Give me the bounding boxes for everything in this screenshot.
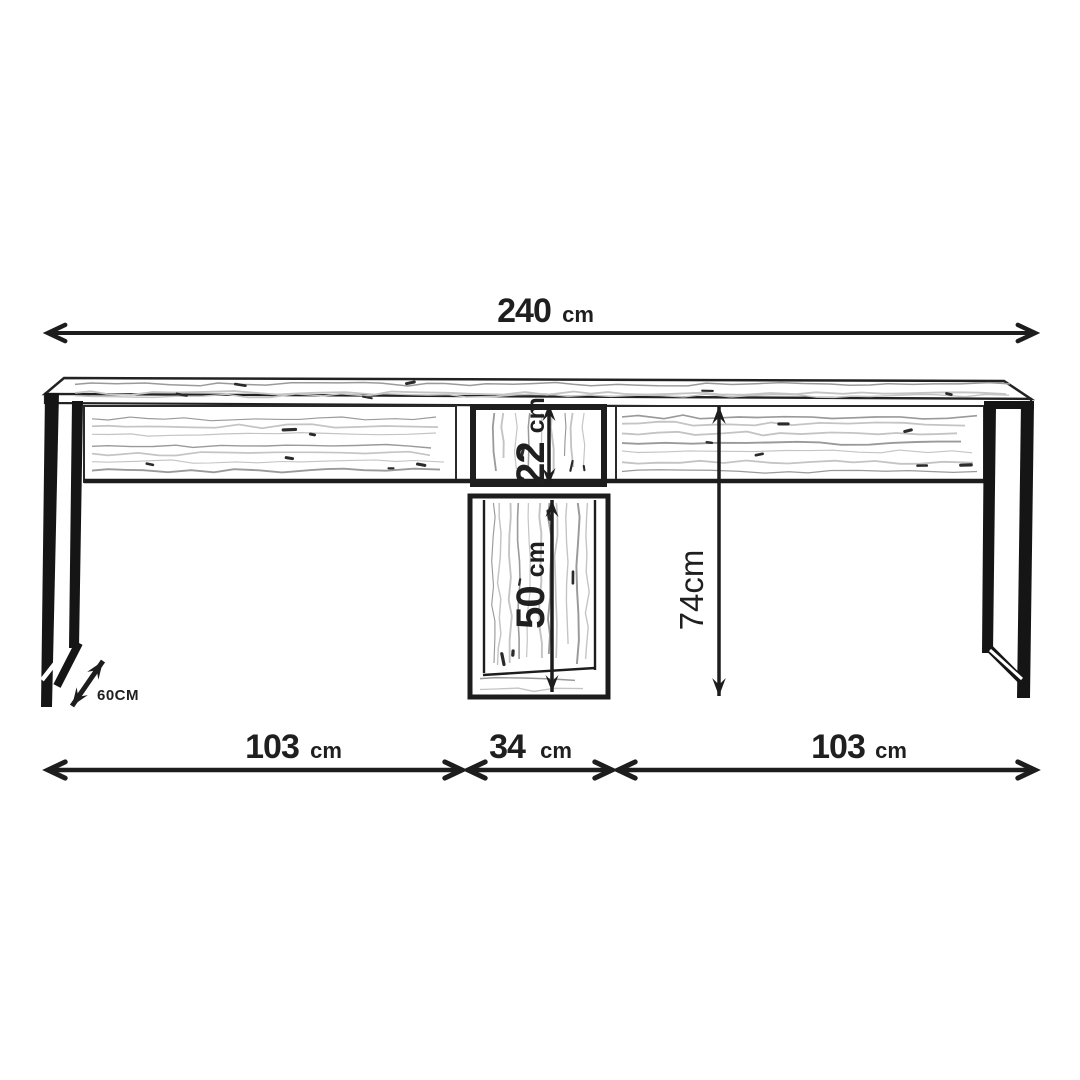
desk-dimension-diagram: 240cm 103cm 34cm 103cm 22cm 50cm 74cm 60… [0,0,1080,1080]
dim-label-desk-height: 74cm [673,550,710,631]
dim-label-depth: 60CM [97,687,139,704]
